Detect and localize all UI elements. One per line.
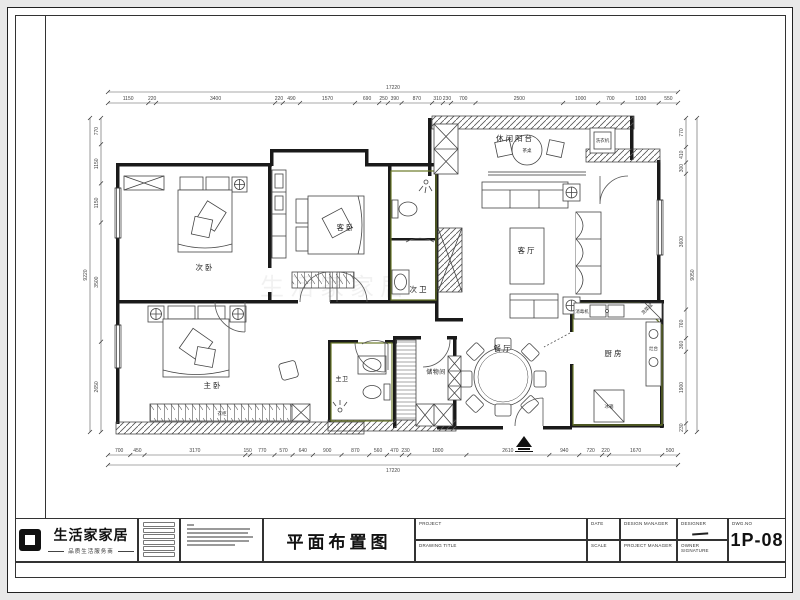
dim-value: 230 bbox=[401, 448, 410, 454]
dim-value: 760 bbox=[679, 319, 685, 328]
drawing-title: 平面布置图 bbox=[264, 519, 414, 561]
kitchen-furniture bbox=[574, 303, 662, 422]
designer-signature-mark bbox=[692, 526, 709, 535]
titleblock-bottom-strip bbox=[15, 562, 786, 578]
notes-line bbox=[187, 524, 194, 526]
dim-value: 770 bbox=[679, 128, 685, 137]
dim-value: 770 bbox=[258, 448, 267, 454]
master-bedroom-furniture bbox=[148, 306, 310, 421]
dim-value: 310 bbox=[433, 96, 442, 102]
dim-value: 1900 bbox=[679, 382, 685, 393]
field-designer-label: DESIGNER bbox=[678, 519, 727, 526]
label-wardrobe: 衣柜 bbox=[218, 410, 227, 417]
notes-line bbox=[187, 532, 248, 534]
dim-value: 700 bbox=[459, 96, 468, 102]
mini-table-row bbox=[143, 546, 175, 551]
dim-value: 410 bbox=[679, 150, 685, 159]
field-drawing-title: DRAWING TITLE bbox=[415, 540, 587, 562]
dim-value: 720 bbox=[586, 448, 595, 454]
dim-value: 450 bbox=[133, 448, 142, 454]
dim-value: 690 bbox=[363, 96, 372, 102]
dim-value: 1670 bbox=[630, 448, 641, 454]
tagline-dash bbox=[118, 551, 134, 552]
field-dwg-no-label: DWG.NO bbox=[729, 519, 785, 526]
company-logo-icon bbox=[19, 529, 41, 551]
company-tagline: 品质生活服务商 bbox=[68, 547, 114, 555]
notes-line bbox=[187, 528, 250, 530]
dim-value: 17220 bbox=[386, 468, 400, 474]
mini-table-row bbox=[143, 540, 175, 545]
dim-value: 390 bbox=[391, 96, 400, 102]
dim-value: 3500 bbox=[94, 276, 100, 287]
room-label-master-bath: 主卫 bbox=[335, 375, 348, 383]
titleblock-notes-cell bbox=[180, 518, 263, 562]
dim-value: 1570 bbox=[322, 96, 333, 102]
dim-value: 550 bbox=[664, 96, 673, 102]
dim-value: 500 bbox=[666, 448, 675, 454]
guest-bedroom-furniture bbox=[292, 196, 364, 288]
dim-value: 220 bbox=[601, 448, 610, 454]
dim-value: 220 bbox=[275, 96, 284, 102]
field-project: PROJECT bbox=[415, 518, 587, 540]
drawing-sheet-stage: 生活家家居 bbox=[0, 0, 800, 600]
label-stove: 灶台 bbox=[649, 345, 658, 352]
field-project-manager-label: PROJECT MANAGER bbox=[621, 541, 676, 548]
dim-value: 360 bbox=[679, 341, 685, 350]
mini-table-row bbox=[143, 534, 175, 539]
dim-value: 1030 bbox=[635, 96, 646, 102]
dim-value: 560 bbox=[374, 448, 383, 454]
dim-value: 570 bbox=[279, 448, 288, 454]
mini-table-row bbox=[143, 528, 175, 533]
dim-value: 230 bbox=[443, 96, 452, 102]
field-design-manager-label: DESIGN MANAGER bbox=[621, 519, 676, 526]
field-project-manager: PROJECT MANAGER bbox=[620, 540, 677, 562]
dim-value: 900 bbox=[323, 448, 332, 454]
tagline-dash bbox=[48, 551, 64, 552]
label-washer: 洗衣机 bbox=[596, 137, 610, 144]
dim-value: 870 bbox=[413, 96, 422, 102]
company-name: 生活家家居 bbox=[53, 525, 128, 545]
titleblock-mini-table bbox=[138, 518, 180, 562]
secondary-bathroom-fixtures bbox=[392, 180, 434, 294]
room-label-kitchen: 厨房 bbox=[605, 348, 624, 358]
dim-value: 150 bbox=[243, 448, 252, 454]
sheet-number: 1P-08 bbox=[729, 526, 785, 555]
field-design-manager: DESIGN MANAGER bbox=[620, 518, 677, 540]
dim-value: 470 bbox=[390, 448, 399, 454]
room-label-living-room: 客厅 bbox=[518, 245, 537, 255]
dim-value: 9050 bbox=[690, 269, 696, 280]
dim-value: 9220 bbox=[83, 269, 89, 280]
dim-value: 940 bbox=[560, 448, 569, 454]
dim-value: 17220 bbox=[386, 85, 400, 91]
dim-value: 490 bbox=[287, 96, 296, 102]
room-label-guest-bedroom: 客卧 bbox=[337, 222, 356, 232]
dim-value: 230 bbox=[679, 423, 685, 432]
label-fridge: 冰箱 bbox=[605, 403, 614, 410]
dim-value: 870 bbox=[351, 448, 360, 454]
label-tea-table: 茶桌 bbox=[523, 147, 532, 154]
dim-value: 1150 bbox=[94, 158, 100, 169]
dim-value: 3400 bbox=[210, 96, 221, 102]
entry-marker bbox=[515, 436, 533, 452]
dim-value: 3170 bbox=[189, 448, 200, 454]
notes-line bbox=[187, 540, 249, 542]
field-date: DATE bbox=[587, 518, 620, 540]
field-owner-signature: OWNER SIGNATURE bbox=[677, 540, 728, 562]
dim-value: 250 bbox=[379, 96, 388, 102]
room-label-leisure-balcony: 休闲阳台 bbox=[496, 133, 534, 143]
field-date-label: DATE bbox=[588, 519, 619, 526]
dim-value: 1000 bbox=[575, 96, 586, 102]
field-designer: DESIGNER bbox=[677, 518, 728, 540]
dim-value: 700 bbox=[115, 448, 124, 454]
dim-value: 300 bbox=[679, 164, 685, 173]
secondary-bedroom-furniture bbox=[124, 170, 286, 258]
mini-table-row bbox=[143, 522, 175, 527]
room-label-dining-room: 餐厅 bbox=[494, 344, 513, 353]
dim-value: 2500 bbox=[514, 96, 525, 102]
dim-value: 3600 bbox=[679, 236, 685, 247]
field-project-label: PROJECT bbox=[416, 519, 586, 526]
dim-value: 770 bbox=[94, 127, 100, 136]
dim-value: 2650 bbox=[94, 381, 100, 392]
field-scale-label: SCALE bbox=[588, 541, 619, 548]
storage-room-furniture bbox=[396, 340, 453, 426]
mini-table-row bbox=[143, 552, 175, 557]
field-drawing-title-label: DRAWING TITLE bbox=[416, 541, 586, 548]
dim-value: 2610 bbox=[502, 448, 513, 454]
room-label-storage: 储物间 bbox=[426, 368, 446, 376]
titleblock-title-cell: 平面布置图 bbox=[263, 518, 415, 562]
label-sterilizer: 消毒机 bbox=[575, 308, 589, 315]
room-label-secondary-bedroom: 次卧 bbox=[196, 262, 215, 272]
notes-line bbox=[187, 544, 235, 546]
dim-value: 640 bbox=[299, 448, 308, 454]
dim-value: 1150 bbox=[123, 96, 134, 102]
sheet-number-cell: DWG.NO 1P-08 bbox=[728, 518, 786, 562]
notes-line bbox=[187, 536, 253, 538]
room-label-master-bedroom: 主卧 bbox=[204, 380, 223, 390]
dim-value: 1800 bbox=[432, 448, 443, 454]
dim-value: 700 bbox=[606, 96, 615, 102]
room-label-secondary-bath: 次卫 bbox=[410, 284, 429, 294]
titleblock-logo-cell: 生活家家居 品质生活服务商 bbox=[15, 518, 138, 562]
dim-value: 1150 bbox=[94, 197, 100, 208]
dim-value: 220 bbox=[148, 96, 157, 102]
floor-plan-canvas: 生活家家居 bbox=[0, 0, 800, 600]
field-scale: SCALE bbox=[587, 540, 620, 562]
field-owner-signature-label: OWNER SIGNATURE bbox=[678, 541, 727, 553]
